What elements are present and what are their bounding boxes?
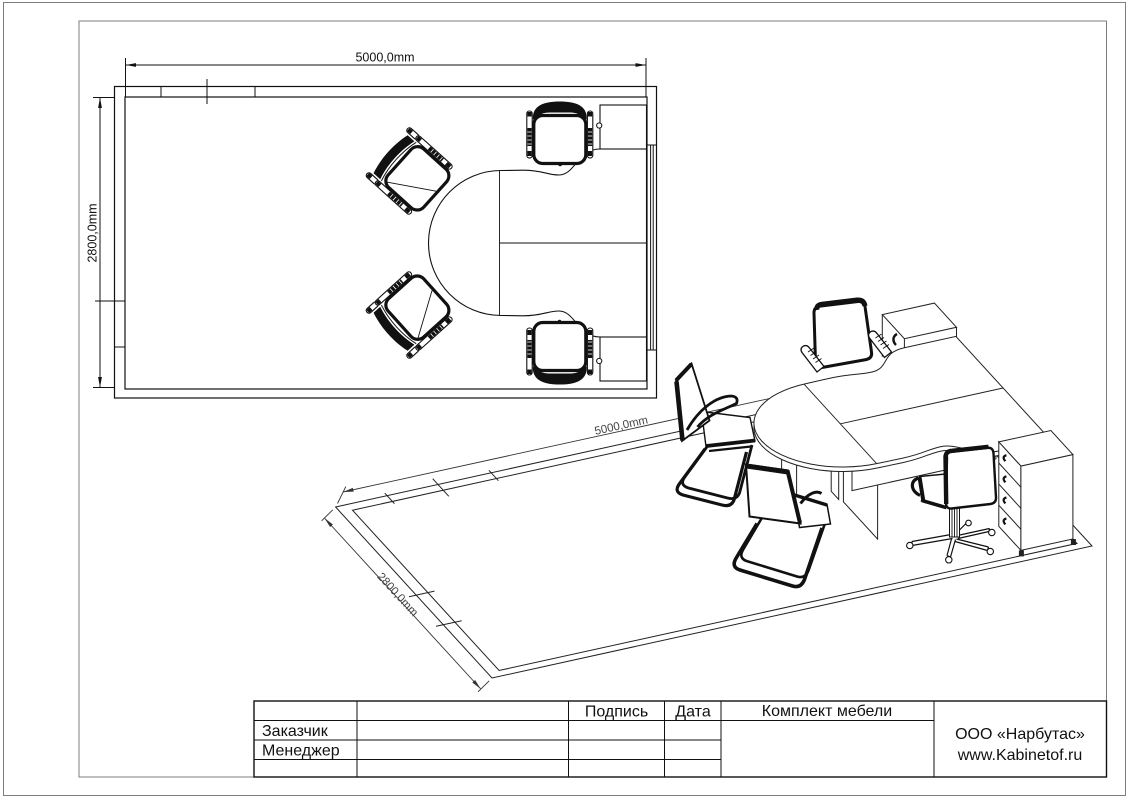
svg-text:Дата: Дата [675,704,711,721]
svg-text:5000,0mm: 5000,0mm [594,414,650,437]
svg-text:2800,0mm: 2800,0mm [86,203,100,262]
svg-text:2800,0mm: 2800,0mm [374,571,420,619]
svg-text:www.Kabinetof.ru: www.Kabinetof.ru [957,747,1083,764]
svg-text:Заказчик: Заказчик [262,723,329,740]
svg-text:Подпись: Подпись [585,704,648,721]
svg-text:Менеджер: Менеджер [262,743,340,760]
svg-text:5000,0mm: 5000,0mm [355,51,414,65]
svg-text:Комплект мебели: Комплект мебели [762,703,892,720]
svg-text:ООО «Нарбутас»: ООО «Нарбутас» [955,726,1085,743]
